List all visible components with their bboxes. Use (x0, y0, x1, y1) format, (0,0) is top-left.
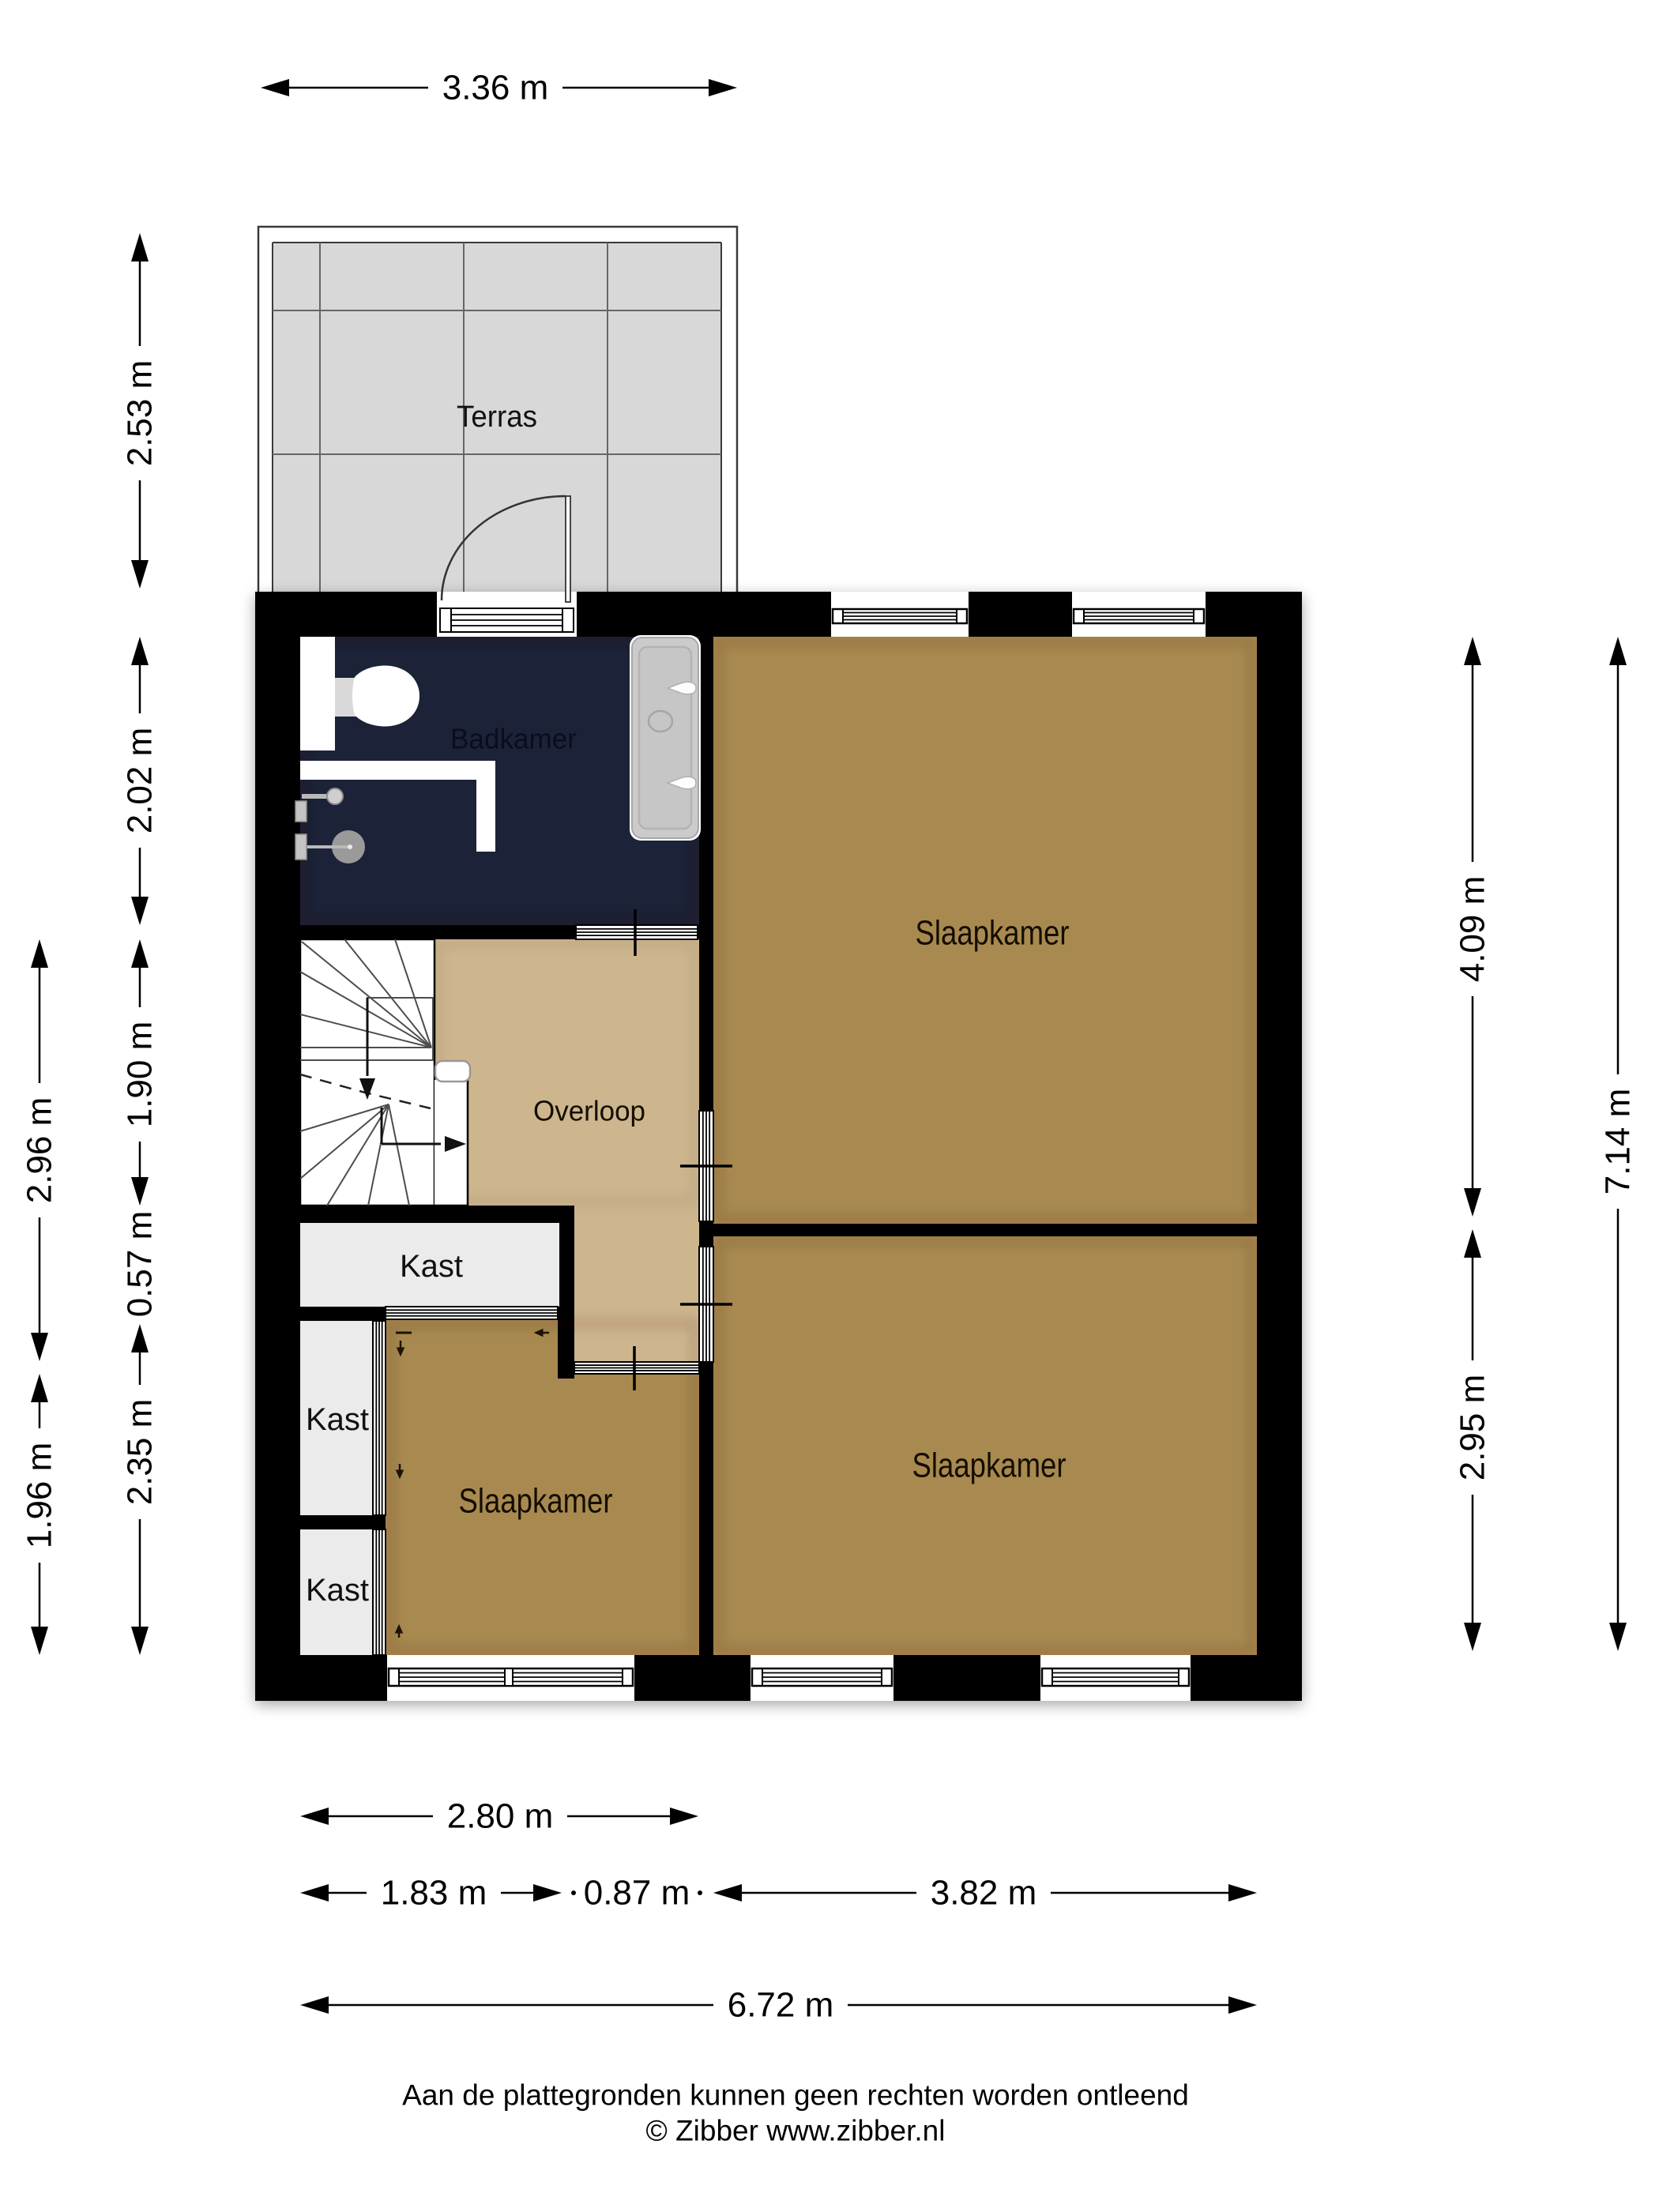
svg-text:2.80 m: 2.80 m (447, 1797, 554, 1836)
svg-text:0.87 m: 0.87 m (584, 1874, 690, 1913)
svg-text:Slaapkamer: Slaapkamer (912, 1446, 1066, 1485)
svg-text:2.96 m: 2.96 m (21, 1097, 59, 1204)
svg-text:6.72 m: 6.72 m (728, 1986, 834, 2025)
svg-text:1.96 m: 1.96 m (21, 1443, 59, 1549)
svg-text:3.36 m: 3.36 m (442, 69, 549, 107)
svg-text:7.14 m: 7.14 m (1599, 1089, 1638, 1195)
svg-text:Overloop: Overloop (533, 1095, 645, 1127)
svg-text:4.09 m: 4.09 m (1454, 876, 1492, 983)
svg-text:2.02 m: 2.02 m (121, 728, 160, 834)
svg-text:Badkamer: Badkamer (450, 723, 577, 755)
svg-text:1.90 m: 1.90 m (121, 1021, 160, 1128)
svg-text:Terras: Terras (457, 401, 537, 434)
svg-text:© Zibber www.zibber.nl: © Zibber www.zibber.nl (646, 2115, 946, 2147)
svg-text:Slaapkamer: Slaapkamer (916, 914, 1070, 953)
svg-text:Kast: Kast (306, 1402, 369, 1437)
svg-text:2.53 m: 2.53 m (121, 360, 160, 467)
svg-text:Aan de plattegronden kunnen ge: Aan de plattegronden kunnen geen rechten… (402, 2079, 1189, 2112)
svg-text:Kast: Kast (306, 1573, 369, 1608)
svg-text:Slaapkamer: Slaapkamer (459, 1482, 613, 1521)
svg-text:3.82 m: 3.82 m (931, 1874, 1037, 1913)
svg-text:1.83 m: 1.83 m (381, 1874, 487, 1913)
svg-text:2.95 m: 2.95 m (1454, 1375, 1492, 1481)
svg-text:2.35 m: 2.35 m (121, 1399, 160, 1506)
svg-text:Kast: Kast (400, 1249, 463, 1284)
svg-text:0.57 m: 0.57 m (121, 1211, 160, 1318)
